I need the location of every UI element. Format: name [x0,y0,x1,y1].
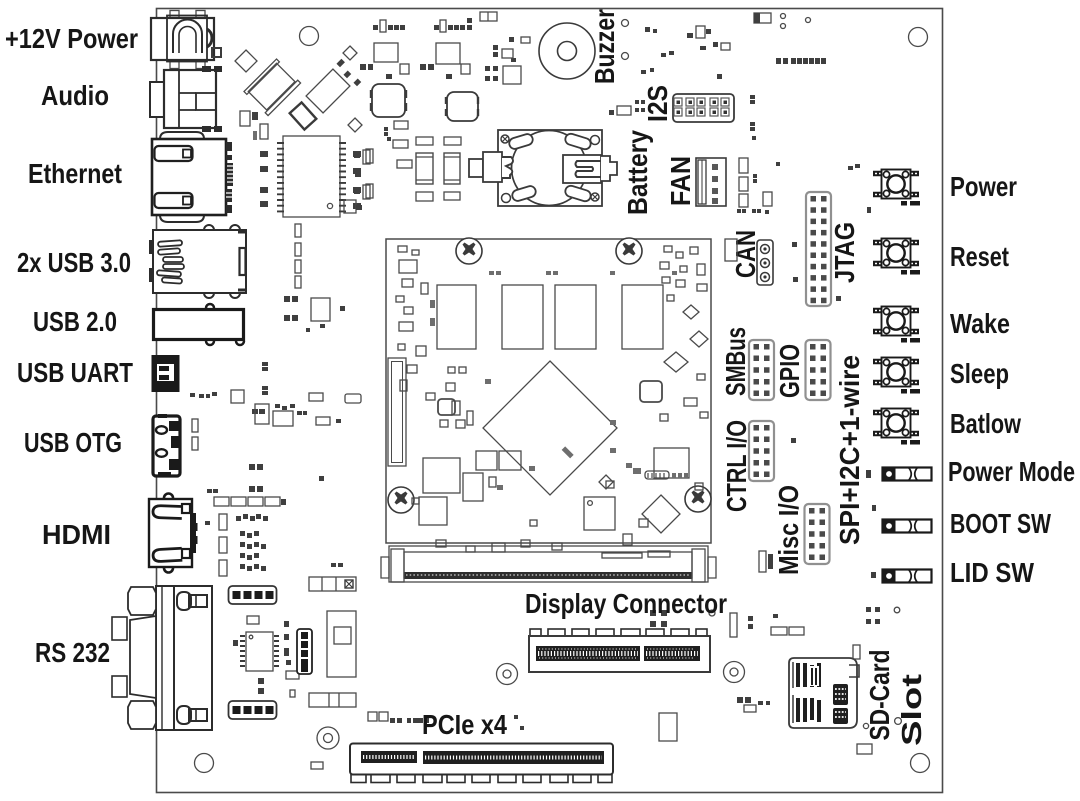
svg-text:SMBus: SMBus [720,327,751,396]
svg-text:PCIe x4: PCIe x4 [422,709,507,740]
svg-text:+12V Power: +12V Power [5,23,138,54]
svg-text:I2S: I2S [642,85,673,122]
svg-text:JTAG: JTAG [829,222,860,283]
svg-text:Batlow: Batlow [950,408,1021,439]
svg-text:Sleep: Sleep [950,358,1009,389]
svg-text:Battery: Battery [622,130,653,215]
svg-text:2x USB 3.0: 2x USB 3.0 [17,247,131,278]
svg-text:Slot: Slot [896,674,927,746]
svg-text:FAN: FAN [665,156,696,206]
svg-text:Reset: Reset [950,241,1009,272]
svg-text:USB UART: USB UART [17,357,133,388]
svg-text:LID SW: LID SW [950,557,1034,588]
svg-text:GPIO: GPIO [774,344,805,398]
svg-text:CTRL I/O: CTRL I/O [721,420,752,512]
svg-text:Power: Power [950,171,1017,202]
svg-text:HDMI: HDMI [42,519,111,550]
svg-text:Power Mode: Power Mode [948,456,1075,487]
svg-text:Ethernet: Ethernet [28,158,122,189]
svg-text:RS 232: RS 232 [35,637,110,668]
svg-text:SPI+I2C+1-wire: SPI+I2C+1-wire [834,355,865,545]
svg-text:Misc I/O: Misc I/O [773,485,804,575]
svg-text:USB OTG: USB OTG [24,427,122,458]
svg-text:BOOT SW: BOOT SW [950,508,1051,539]
svg-text:Display Connector: Display Connector [525,588,727,619]
svg-text:Wake: Wake [950,308,1010,339]
svg-text:Audio: Audio [41,80,109,111]
svg-text:USB 2.0: USB 2.0 [33,306,117,337]
